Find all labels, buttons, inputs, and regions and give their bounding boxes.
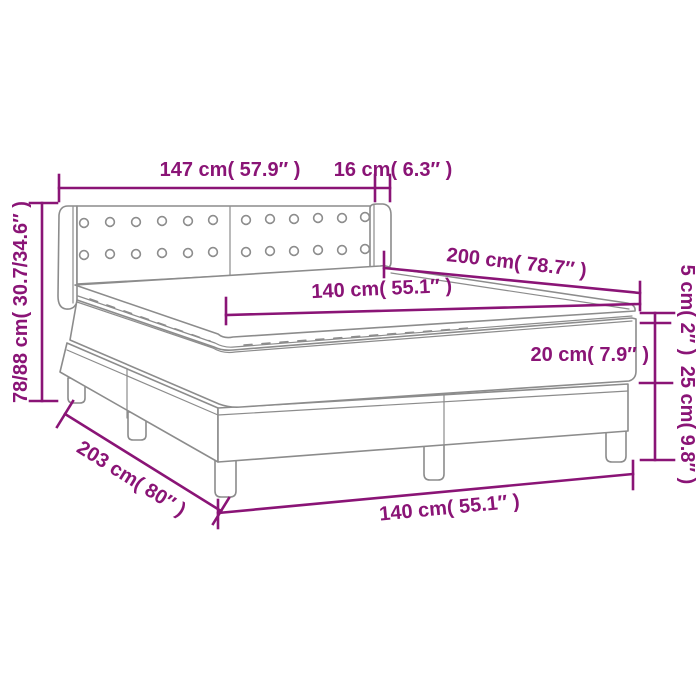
bed-leg xyxy=(215,458,236,497)
label-headboard-height: 78/88 cm( 30.7/34.6″ ) xyxy=(10,201,32,403)
bed-dimension-diagram: 147 cm( 57.9″ ) 16 cm( 6.3″ ) 78/88 cm( … xyxy=(0,0,700,700)
bed-leg xyxy=(424,444,444,480)
label-base-height: 25 cm( 9.8″ ) xyxy=(676,366,698,485)
label-mattress-thickness: 20 cm( 7.9″ ) xyxy=(530,344,649,366)
headboard-left-wing xyxy=(58,206,77,309)
diagram-canvas: 147 cm( 57.9″ ) 16 cm( 6.3″ ) 78/88 cm( … xyxy=(0,0,700,700)
headboard-right-wing xyxy=(370,204,391,272)
label-headboard-width: 147 cm( 57.9″ ) xyxy=(160,159,301,181)
label-headboard-wing-depth: 16 cm( 6.3″ ) xyxy=(334,159,453,181)
dim-tick xyxy=(57,401,73,427)
label-base-length: 203 cm( 80″ ) xyxy=(73,437,190,521)
label-topper-thickness: 5 cm( 2″ ) xyxy=(676,265,698,356)
